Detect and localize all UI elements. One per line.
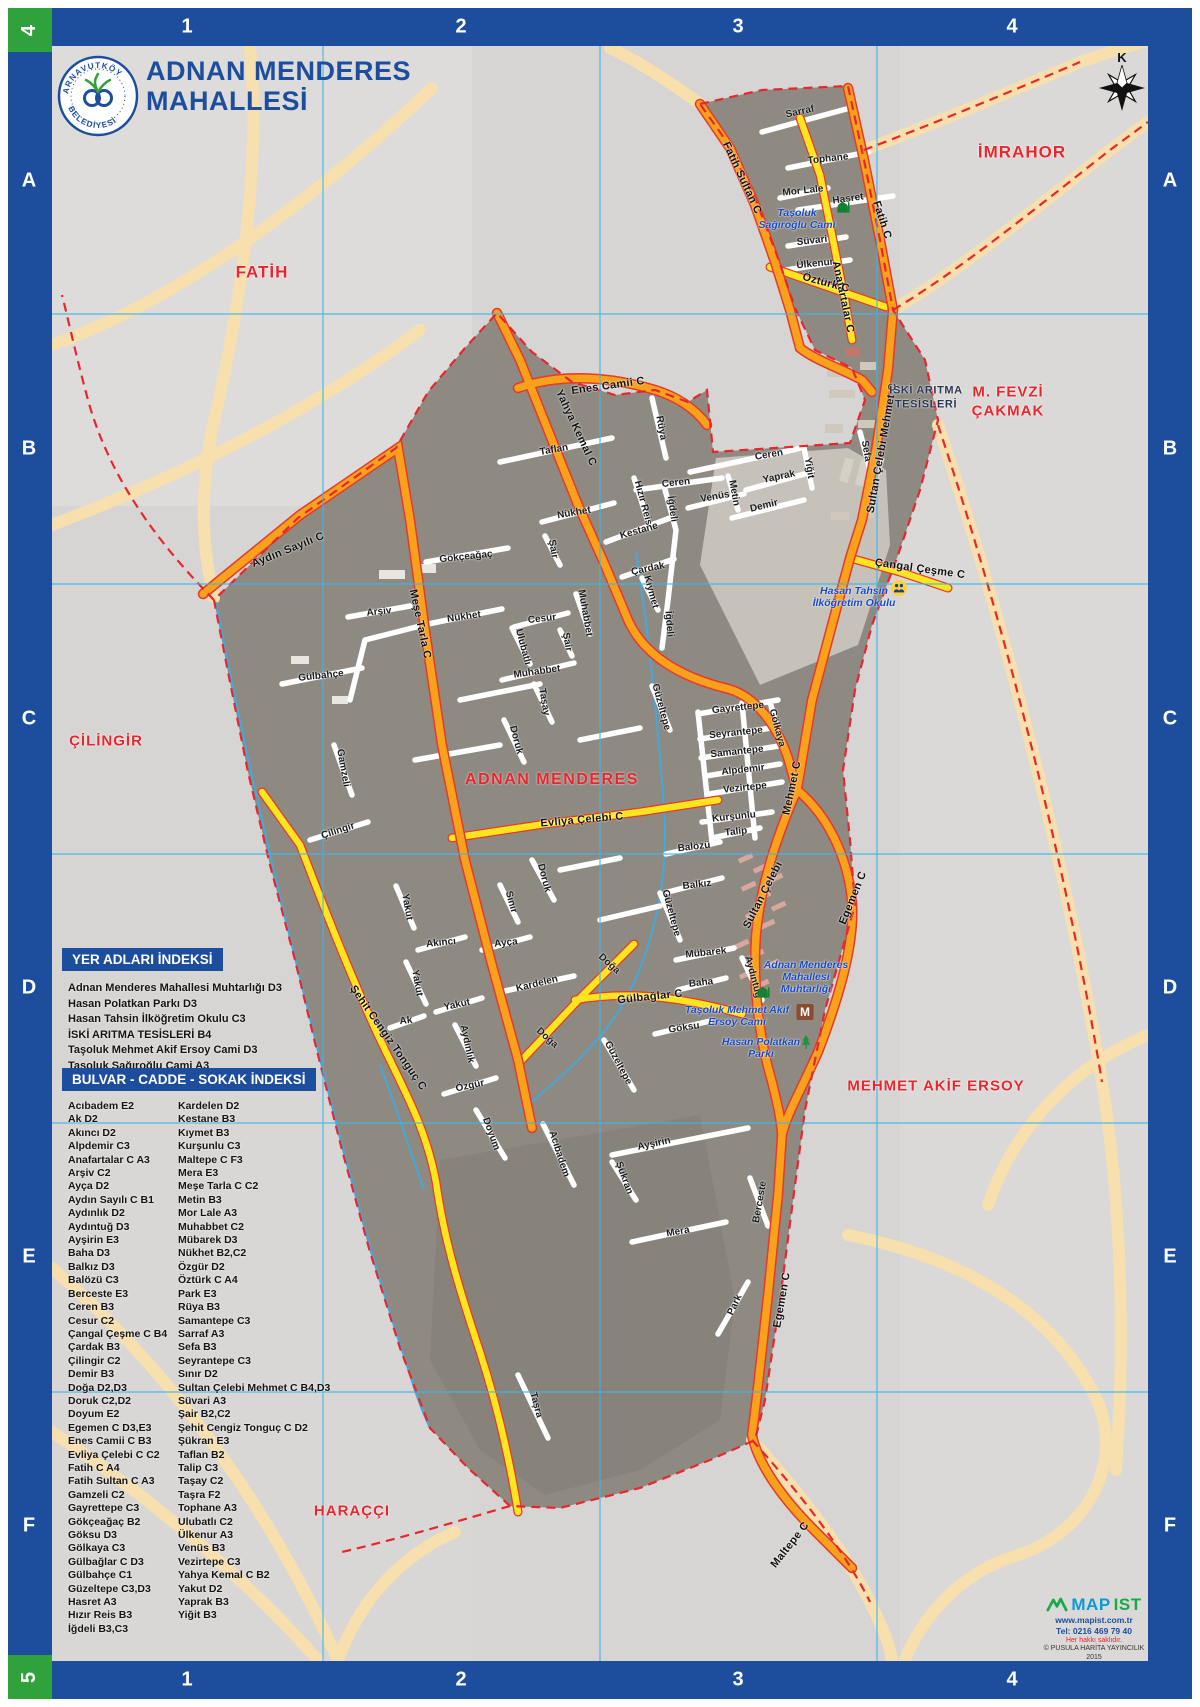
municipality-logo: ARNAVUTKÖY BELEDİYESİ [56, 54, 140, 143]
streets-index-item: Sarraf A3 [178, 1328, 330, 1341]
streets-index-item: Şehit Cengiz Tonguç C D2 [178, 1422, 330, 1435]
streets-index-item: Aydınlık D2 [68, 1207, 167, 1220]
grid-row-label: A [1163, 170, 1177, 193]
streets-index-item: Arşiv C2 [68, 1167, 167, 1180]
grid-row-label: D [22, 977, 36, 1000]
streets-index-item: Ayça D2 [68, 1180, 167, 1193]
rights-note: Her hakkı saklıdır. [1036, 1637, 1152, 1646]
streets-index-item: Vezirtepe C3 [178, 1556, 330, 1569]
places-index-list: Adnan Menderes Mahallesi Muhtarlığı D3Ha… [68, 981, 282, 1075]
streets-index-item: Gökçeağaç B2 [68, 1516, 167, 1529]
neighbor-district-label: FATİH [236, 261, 289, 282]
streets-index-item: Çardak B3 [68, 1341, 167, 1354]
streets-index-item: Baha D3 [68, 1247, 167, 1260]
publisher-phone: Tel: 0216 469 79 40 [1036, 1626, 1152, 1637]
streets-index-item: Balözü C3 [68, 1274, 167, 1287]
iski-facility-label: İSKİ ARITMA TESİSLERİ [889, 384, 962, 412]
poi-label: Taşoluk Sağıroğlu Cami [758, 207, 835, 231]
grid-column-label: 3 [732, 1669, 743, 1692]
streets-index-item: Balkız D3 [68, 1261, 167, 1274]
grid-column-label: 4 [1006, 1669, 1017, 1692]
streets-index-item: Taflan B2 [178, 1449, 330, 1462]
places-index-item: Hasan Tahsin İlköğretim Okulu C3 [68, 1012, 282, 1028]
streets-index-item: Kurşunlu C3 [178, 1140, 330, 1153]
compass-rose: K [1097, 50, 1147, 116]
mosque-icon [835, 199, 851, 215]
places-index-item: İSKİ ARITMA TESİSLERİ B4 [68, 1028, 282, 1044]
streets-index-item: Şair B2,C2 [178, 1408, 330, 1421]
streets-index-item: Güzeltepe C3,D3 [68, 1583, 167, 1596]
streets-index-item: Taşra F2 [178, 1489, 330, 1502]
park-icon [799, 1034, 813, 1050]
grid-row-label: A [22, 170, 36, 193]
mosque-icon [755, 984, 771, 1000]
frame-right [1148, 8, 1192, 1699]
streets-index-item: Alpdemir C3 [68, 1140, 167, 1153]
streets-index-item: Çilingir C2 [68, 1355, 167, 1368]
streets-index-item: Park E3 [178, 1288, 330, 1301]
streets-index-item: Öztürk C A4 [178, 1274, 330, 1287]
neighborhood-name-label: ADNAN MENDERES [465, 771, 639, 789]
streets-index-item: Talip C3 [178, 1462, 330, 1475]
streets-index-item: Cesur C2 [68, 1315, 167, 1328]
streets-index-item: Seyrantepe C3 [178, 1355, 330, 1368]
grid-column-label: 2 [455, 1669, 466, 1692]
streets-index-header: BULVAR - CADDE - SOKAK İNDEKSİ [62, 1068, 316, 1091]
streets-index-item: Metin B3 [178, 1194, 330, 1207]
streets-index-item: Aydıntuğ D3 [68, 1221, 167, 1234]
grid-row-label: C [1163, 708, 1177, 731]
grid-row-label: D [1163, 977, 1177, 1000]
streets-index-item: Mübarek D3 [178, 1234, 330, 1247]
streets-index-item: Demir B3 [68, 1368, 167, 1381]
poi-label: Taşoluk Mehmet Akif Ersoy Cami [685, 1004, 789, 1028]
grid-row-label: F [23, 1515, 35, 1538]
streets-index-item: Ak D2 [68, 1113, 167, 1126]
streets-index-item: Gayrettepe C3 [68, 1502, 167, 1515]
streets-index-item: Acıbadem E2 [68, 1100, 167, 1113]
frame-left [8, 8, 52, 1699]
grid-column-label: 1 [181, 1669, 192, 1692]
streets-index-item: Çangal Çeşme C B4 [68, 1328, 167, 1341]
street-label: Talip [724, 825, 748, 838]
streets-index-item: Meşe Tarla C C2 [178, 1180, 330, 1193]
streets-index-item: Fatih Sultan C A3 [68, 1475, 167, 1488]
streets-index-item: Gölkaya C3 [68, 1542, 167, 1555]
streets-index-item: Venüs B3 [178, 1542, 330, 1555]
adjacent-sheet-number: 4 [19, 24, 42, 35]
brand-map: MAP [1071, 1594, 1110, 1615]
streets-index-item: Hasret A3 [68, 1596, 167, 1609]
adjacent-sheet-number: 5 [19, 1671, 42, 1682]
grid-column-label: 1 [181, 16, 192, 39]
streets-index-item: Özgür D2 [178, 1261, 330, 1274]
streets-index-item: Yiğit B3 [178, 1609, 330, 1622]
streets-index-item: Taşay C2 [178, 1475, 330, 1488]
publisher-credits: MAPIST www.mapist.com.tr Tel: 0216 469 7… [1036, 1594, 1152, 1663]
streets-index-item: Yakut D2 [178, 1583, 330, 1596]
poi-label: Adnan Menderes Mahallesi Muhtarlığı [764, 959, 849, 995]
grid-row-label: E [22, 1246, 35, 1269]
places-index-item: Adnan Menderes Mahallesi Muhtarlığı D3 [68, 981, 282, 997]
compass-star-icon [1099, 65, 1145, 111]
streets-index-item: Süvari A3 [178, 1395, 330, 1408]
adjacent-sheet-tab-top: 4 [8, 8, 52, 52]
streets-index-item: Kardelen D2 [178, 1100, 330, 1113]
streets-index-item: Hızır Reis B3 [68, 1609, 167, 1622]
streets-index-item: Anafartalar C A3 [68, 1154, 167, 1167]
streets-index-item: Enes Camii C B3 [68, 1435, 167, 1448]
streets-index-item: Ulubatlı C2 [178, 1516, 330, 1529]
grid-column-label: 3 [732, 16, 743, 39]
streets-index-item: Göksu D3 [68, 1529, 167, 1542]
streets-index-item: Sınır D2 [178, 1368, 330, 1381]
streets-index-item: Tophane A3 [178, 1502, 330, 1515]
field-dark-patch [430, 1115, 735, 1495]
grid-column-label: 4 [1006, 16, 1017, 39]
muhtarlik-m-icon: M [797, 1004, 814, 1020]
map-sheet: SarrafFatih Sultan CTophaneMor LaleHasre… [0, 0, 1200, 1707]
streets-index-item: Egemen C D3,E3 [68, 1422, 167, 1435]
grid-row-label: F [1164, 1515, 1176, 1538]
grid-row-label: B [1163, 438, 1177, 461]
streets-index-item: Rüya B3 [178, 1301, 330, 1314]
street-label: Ak [399, 1015, 413, 1027]
street-label: İğdeli [662, 611, 675, 638]
brand-ist: IST [1114, 1594, 1142, 1615]
streets-index-item: Evliya Çelebi C C2 [68, 1449, 167, 1462]
streets-index-item: İğdeli B3,C3 [68, 1623, 167, 1636]
streets-index-item: Kestane B3 [178, 1113, 330, 1126]
publisher-url: www.mapist.com.tr [1036, 1615, 1152, 1626]
neighbor-district-label: M. FEVZİ ÇAKMAK [972, 383, 1045, 421]
streets-index-col1: Acıbadem E2Ak D2Akıncı D2Alpdemir C3Anaf… [68, 1100, 167, 1636]
streets-index-item: Samantepe C3 [178, 1315, 330, 1328]
streets-index-item: Doruk C2,D2 [68, 1395, 167, 1408]
streets-index-item: Aydın Sayılı C B1 [68, 1194, 167, 1207]
streets-index-item: Gülbahçe C1 [68, 1569, 167, 1582]
streets-index-item: Ülkenur A3 [178, 1529, 330, 1542]
places-index-item: Hasan Polatkan Parkı D3 [68, 997, 282, 1013]
streets-index-item: Sefa B3 [178, 1341, 330, 1354]
muhtarlik-icon: M [797, 1004, 814, 1020]
compass-north-label: K [1097, 50, 1147, 65]
poi-label: Hasan Polatkan Parkı [722, 1036, 800, 1060]
grid-row-label: B [22, 438, 36, 461]
streets-index-item: Mor Lale A3 [178, 1207, 330, 1220]
title-line1: ADNAN MENDERES [146, 56, 411, 86]
streets-index-item: Şükran E3 [178, 1435, 330, 1448]
streets-index-item: Doyum E2 [68, 1408, 167, 1421]
places-index-header: YER ADLARI İNDEKSİ [62, 948, 223, 971]
grid-row-label: C [22, 708, 36, 731]
places-index-item: Taşoluk Mehmet Akif Ersoy Cami D3 [68, 1043, 282, 1059]
title-line2: MAHALLESİ [146, 86, 411, 116]
streets-index-item: Nükhet B2,C2 [178, 1247, 330, 1260]
streets-index-item: Kıymet B3 [178, 1127, 330, 1140]
streets-index-col2: Kardelen D2Kestane B3Kıymet B3Kurşunlu C… [178, 1100, 330, 1623]
mapist-logo-mark [1046, 1597, 1068, 1612]
adjacent-sheet-tab-bottom: 5 [8, 1655, 52, 1699]
streets-index-item: Mera E3 [178, 1167, 330, 1180]
streets-index-item: Ayşirin E3 [68, 1234, 167, 1247]
streets-index-item: Gamzeli C2 [68, 1489, 167, 1502]
school-icon [891, 580, 907, 596]
streets-index-item: Berceste E3 [68, 1288, 167, 1301]
streets-index-item: Sultan Çelebi Mehmet C B4,D3 [178, 1382, 330, 1395]
streets-index-item: Yahya Kemal C B2 [178, 1569, 330, 1582]
streets-index-item: Doğa D2,D3 [68, 1382, 167, 1395]
poi-label: Hasan Tahsin İlköğretim Okulu [813, 585, 896, 609]
streets-index-item: Muhabbet C2 [178, 1221, 330, 1234]
neighbor-district-label: İMRAHOR [978, 141, 1066, 162]
page-title: ADNAN MENDERES MAHALLESİ [146, 56, 411, 116]
neighbor-district-label: ÇİLİNGİR [69, 733, 143, 752]
streets-index-item: Akıncı D2 [68, 1127, 167, 1140]
neighbor-district-label: MEHMET AKİF ERSOY [847, 1078, 1024, 1097]
streets-index-item: Fatih C A4 [68, 1462, 167, 1475]
grid-column-label: 2 [455, 16, 466, 39]
streets-index-item: Maltepe C F3 [178, 1154, 330, 1167]
grid-row-label: E [1163, 1246, 1176, 1269]
streets-index-item: Ceren B3 [68, 1301, 167, 1314]
streets-index-item: Yaprak B3 [178, 1596, 330, 1609]
streets-index-item: Gülbağlar C D3 [68, 1556, 167, 1569]
